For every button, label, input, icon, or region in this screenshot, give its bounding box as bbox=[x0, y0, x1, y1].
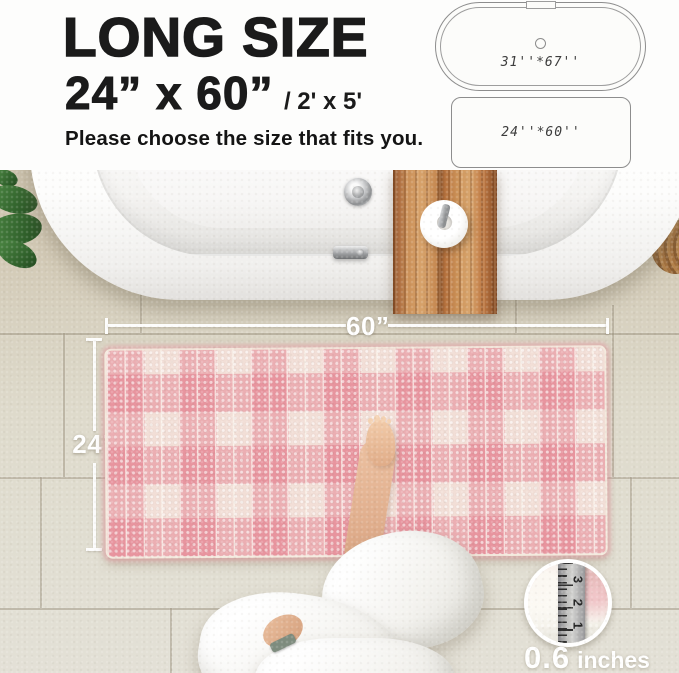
ruler-number: 2 bbox=[571, 596, 586, 610]
mat-size-diagram: 24''*60'' bbox=[451, 97, 631, 168]
size-subtitle: Please choose the size that fits you. bbox=[65, 127, 423, 151]
person-toes bbox=[387, 419, 391, 424]
ruler-number: 1 bbox=[571, 619, 586, 633]
thickness-unit: inches bbox=[577, 647, 650, 673]
size-alt-text: / 2' x 5' bbox=[284, 88, 362, 115]
bathtub-drain-icon bbox=[535, 38, 546, 49]
person-toes bbox=[374, 415, 380, 422]
bathtub-size-diagram: 31''*67'' bbox=[435, 2, 646, 91]
person-toes bbox=[368, 418, 373, 424]
bathtub-size-label: 31''*67'' bbox=[436, 55, 645, 70]
bathroom-photo: 60” 24” bbox=[0, 170, 679, 673]
height-dimension-endcap bbox=[86, 548, 102, 551]
width-label: 60” bbox=[346, 311, 388, 342]
width-dimension-line bbox=[108, 324, 346, 327]
grout-line bbox=[170, 608, 172, 673]
grout-line bbox=[612, 305, 614, 477]
thickness-inset: 1 2 3 bbox=[524, 559, 612, 647]
grout-line bbox=[40, 477, 42, 608]
product-image: LONG SIZE 24” x 60” / 2' x 5' Please cho… bbox=[0, 0, 679, 673]
height-dimension-line bbox=[93, 341, 96, 431]
grout-line bbox=[607, 477, 679, 479]
page-title: LONG SIZE bbox=[63, 10, 368, 65]
grout-line bbox=[0, 477, 105, 479]
width-dimension-line bbox=[388, 324, 606, 327]
height-dimension-line bbox=[93, 463, 96, 548]
thickness-value: 0.6 bbox=[524, 640, 570, 673]
grout-line bbox=[630, 477, 632, 608]
bathtub bbox=[30, 170, 679, 300]
ruler-icon: 1 2 3 bbox=[558, 560, 585, 647]
faucet-icon bbox=[333, 246, 368, 259]
thickness-label: 0.6inches bbox=[524, 640, 650, 673]
header-section: LONG SIZE 24” x 60” / 2' x 5' Please cho… bbox=[0, 0, 679, 170]
size-headline: 24” x 60” / 2' x 5' bbox=[65, 66, 362, 120]
grout-line bbox=[0, 333, 679, 335]
person-toes bbox=[381, 416, 386, 422]
ruler-number: 3 bbox=[571, 573, 586, 587]
toilet-paper-roll bbox=[420, 200, 468, 248]
bathtub-faucet-notch bbox=[526, 1, 556, 9]
drain-cap-icon bbox=[344, 178, 372, 206]
grout-line bbox=[515, 296, 517, 333]
width-dimension-endcap bbox=[606, 318, 609, 334]
mat-size-label: 24''*60'' bbox=[452, 125, 630, 140]
size-main-text: 24” x 60” bbox=[65, 67, 273, 119]
